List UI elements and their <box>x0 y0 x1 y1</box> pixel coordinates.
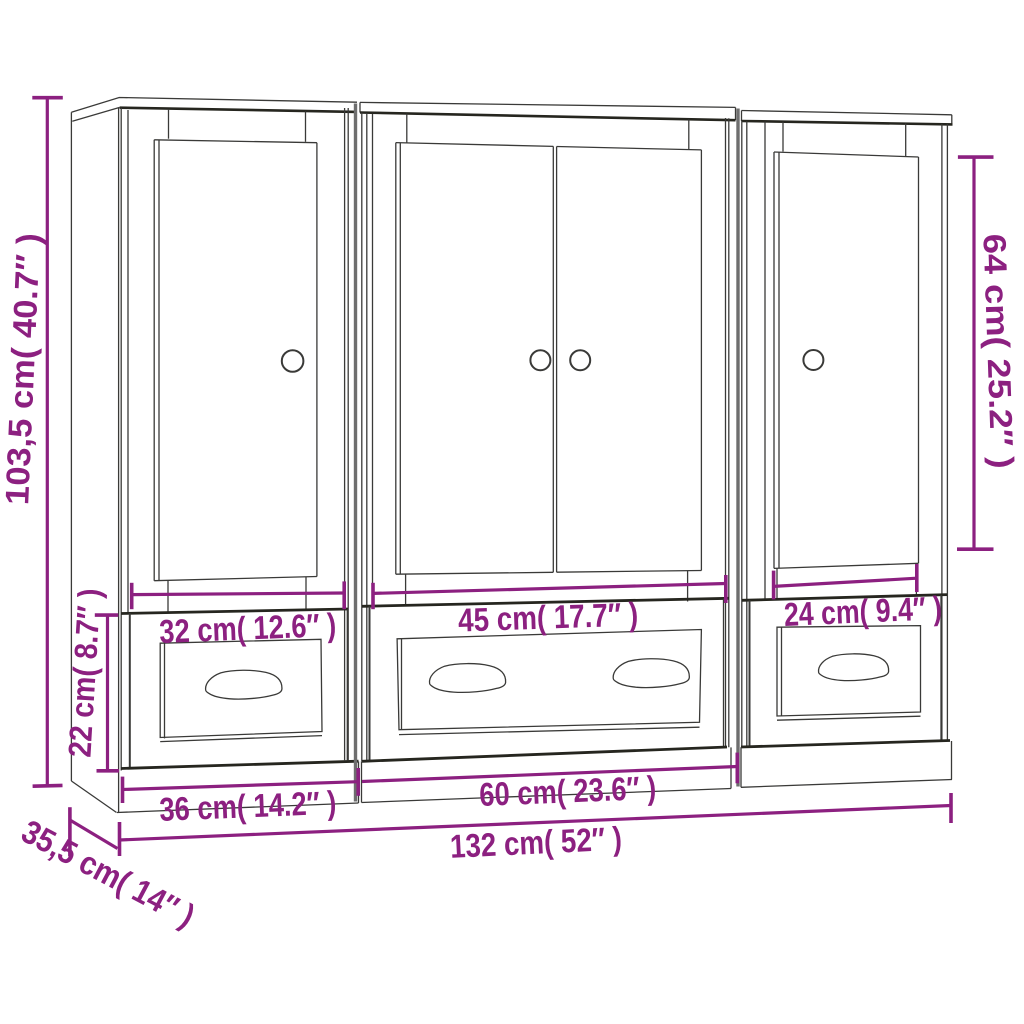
svg-text:45 cm( 17.7″ ): 45 cm( 17.7″ ) <box>458 595 639 638</box>
svg-text:24 cm( 9.4″ ): 24 cm( 9.4″ ) <box>783 589 942 633</box>
svg-text:32 cm( 12.6″ ): 32 cm( 12.6″ ) <box>159 606 337 650</box>
svg-text:36 cm( 14.2″ ): 36 cm( 14.2″ ) <box>159 784 337 828</box>
svg-text:60 cm( 23.6″ ): 60 cm( 23.6″ ) <box>479 769 657 813</box>
